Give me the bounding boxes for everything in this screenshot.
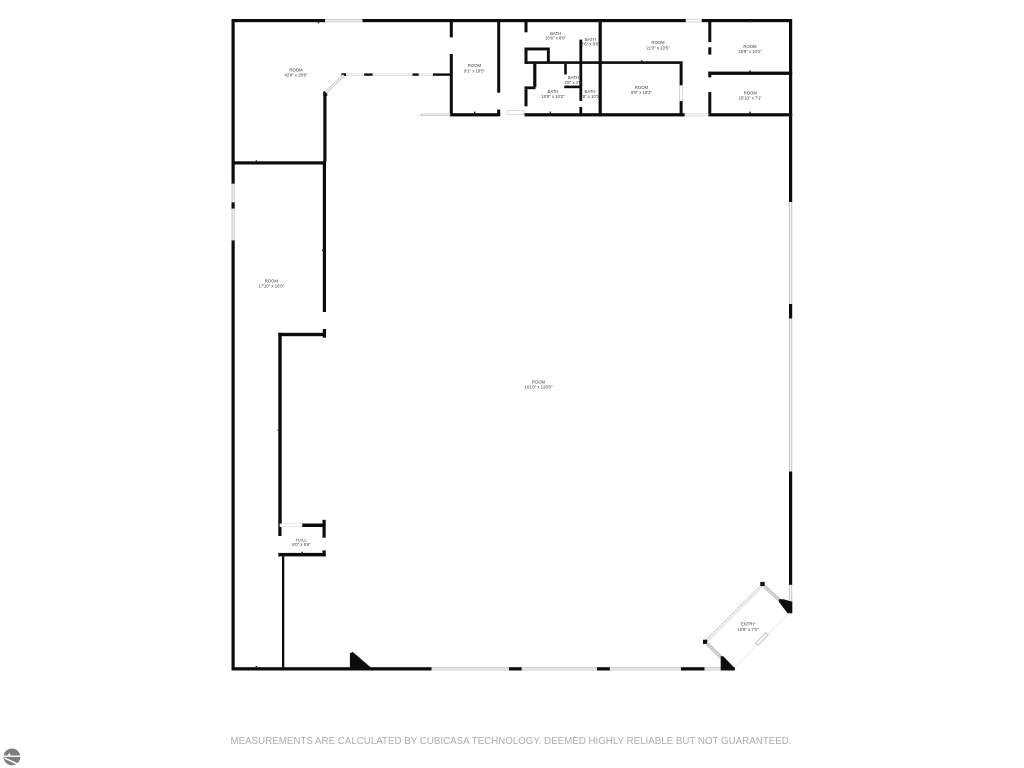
svg-text:42'8" x 28'0": 42'8" x 28'0" [284,73,308,78]
svg-text:21'0" x 10'5": 21'0" x 10'5" [646,45,670,50]
svg-text:10'8" x 10'2": 10'8" x 10'2" [541,94,565,99]
svg-text:ENTRY: ENTRY [741,622,755,627]
svg-text:3'8" x 4'5": 3'8" x 4'5" [564,80,583,85]
svg-text:17'10" x 16'0": 17'10" x 16'0" [258,284,284,289]
svg-text:10'8" x 7'0": 10'8" x 7'0" [738,627,759,632]
svg-text:9'8" x 10'2": 9'8" x 10'2" [631,90,652,95]
svg-text:15'10" x 7'1": 15'10" x 7'1" [739,96,763,101]
svg-text:2'6" x 8'0": 2'6" x 8'0" [581,42,600,47]
svg-text:101'0" x 128'0": 101'0" x 128'0" [524,385,553,390]
svg-text:8'0" x 5'6": 8'0" x 5'6" [292,542,311,547]
svg-text:ROOM: ROOM [532,379,546,384]
svg-text:MEASUREMENTS ARE CALCULATED BY: MEASUREMENTS ARE CALCULATED BY CUBICASA … [231,736,792,747]
svg-text:10'6" x 8'0": 10'6" x 8'0" [545,36,566,41]
svg-text:15'9" x 10'2": 15'9" x 10'2" [738,49,762,54]
svg-text:3'6" x 10'2": 3'6" x 10'2" [580,94,601,99]
svg-text:9'1" x 18'5": 9'1" x 18'5" [464,68,485,73]
